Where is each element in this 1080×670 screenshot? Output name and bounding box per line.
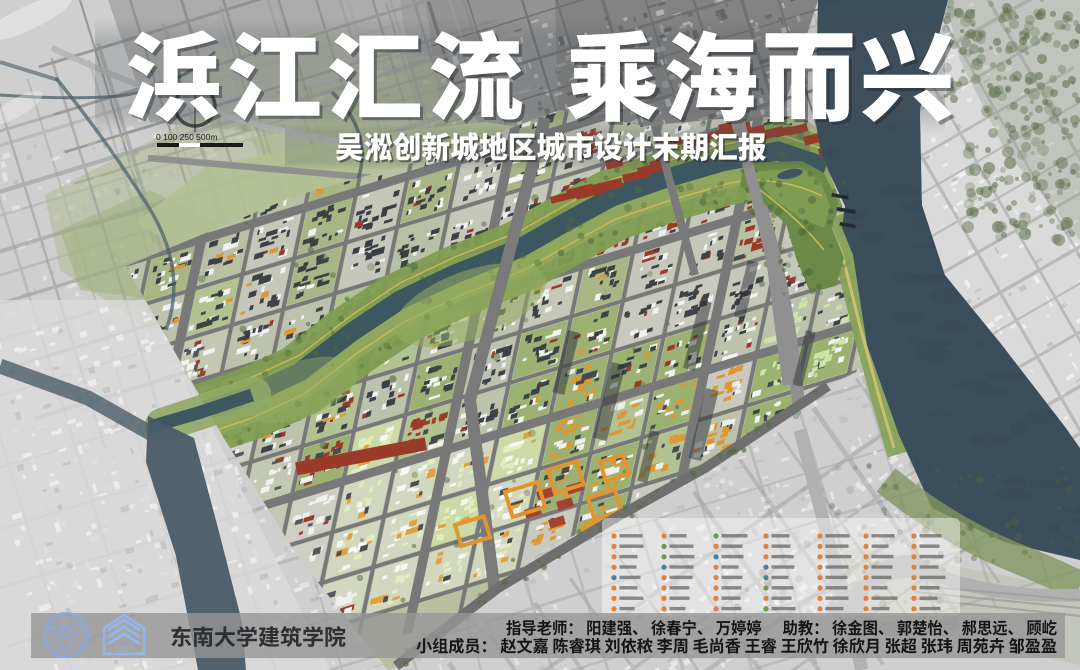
svg-text:1927: 1927	[115, 645, 133, 654]
